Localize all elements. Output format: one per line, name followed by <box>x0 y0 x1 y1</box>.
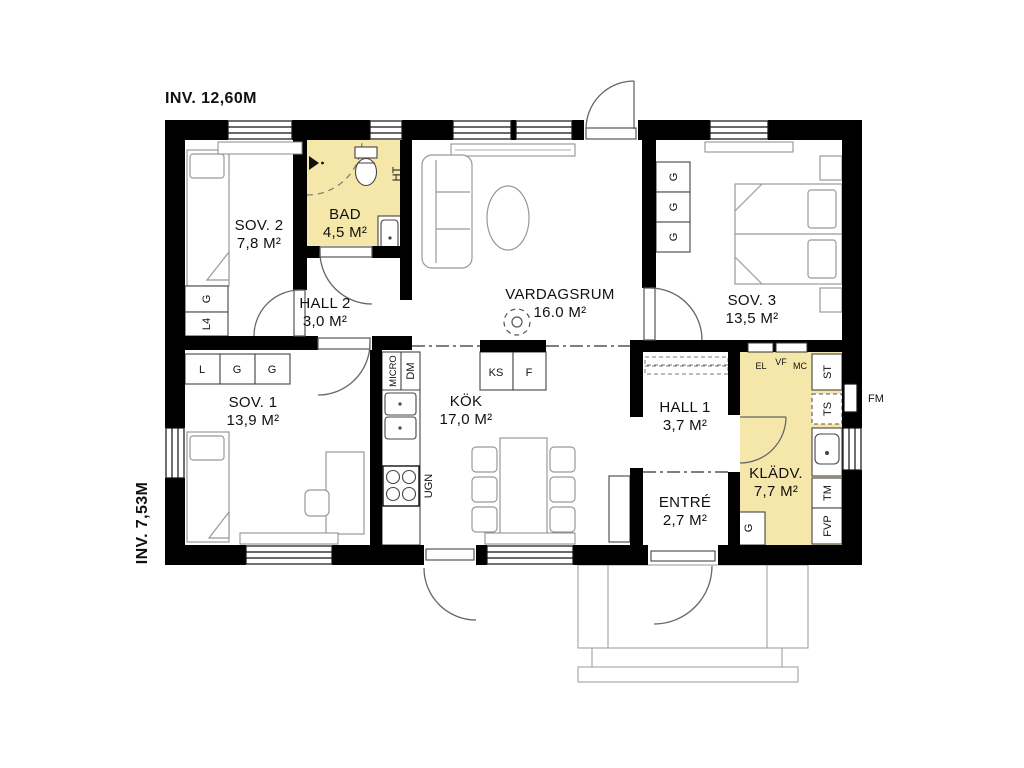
window-sill-kok <box>485 533 575 544</box>
shower-drain-dot <box>321 162 324 165</box>
room-area-entre: 2,7 M² <box>663 512 707 529</box>
room-label-hall1: HALL 1 <box>659 399 710 416</box>
sov3-g3-label: G <box>668 233 680 242</box>
pillow-sov3-2 <box>808 240 836 278</box>
kladv-vf-label: VF <box>775 357 787 367</box>
room-area-kok: 17,0 M² <box>440 411 493 428</box>
wall <box>572 120 584 140</box>
kladv-el-label: EL <box>755 361 766 371</box>
room-label-kok: KÖK <box>450 392 483 410</box>
door-kok-garden <box>424 546 476 620</box>
kladv-ts-label: TS <box>822 402 834 416</box>
room-label-sov3: SOV. 3 <box>728 292 777 309</box>
kok-ks-label: KS <box>489 367 504 379</box>
kok-micro-label: MICRO <box>388 355 399 387</box>
deck-step-1 <box>592 648 782 667</box>
kladv-mc-label: MC <box>793 361 807 371</box>
wall <box>642 140 656 288</box>
kladv-tm-label: TM <box>822 485 834 501</box>
wall <box>165 336 318 350</box>
bad-ht-label: HT <box>391 166 403 181</box>
kok-dm-label: DM <box>405 362 417 379</box>
window-sov1-left <box>166 428 184 478</box>
fm-meter-box <box>844 384 857 412</box>
window-kok-bottom <box>487 546 573 564</box>
wall <box>842 120 862 428</box>
kok-ugn-label: UGN <box>423 474 435 499</box>
sofa <box>422 155 472 268</box>
chair-r2 <box>550 477 575 502</box>
toilet-tank <box>355 147 377 158</box>
window-sill-sov3 <box>705 142 793 152</box>
window-sov3 <box>710 121 768 139</box>
chair-sov1 <box>305 490 329 516</box>
kladv-fvp-label: FVP <box>822 515 834 536</box>
bath-sink-drain <box>388 236 391 239</box>
wall <box>293 258 307 290</box>
chair-l2 <box>472 477 497 502</box>
room-label-vardagsrum: VARDAGSRUM <box>505 286 614 303</box>
window-kladv-right <box>843 428 861 470</box>
room-area-sov1: 13,9 M² <box>227 412 280 429</box>
deck-main <box>578 565 808 648</box>
door-vardagsrum-terrace <box>584 81 638 139</box>
room-label-entre: ENTRÉ <box>659 494 711 511</box>
wall <box>630 352 643 417</box>
room-label-bad: BAD <box>329 206 361 223</box>
nightstand-2 <box>820 288 842 312</box>
sov3-g1-label: G <box>668 173 680 182</box>
sink-drain-2 <box>398 426 401 429</box>
desk-sov1 <box>326 452 364 534</box>
wall <box>728 472 740 545</box>
room-area-hall1: 3,7 M² <box>663 417 707 434</box>
sov1-g1-label: G <box>233 364 242 376</box>
entre-cabinet <box>609 476 630 542</box>
wall <box>842 470 862 565</box>
wall <box>293 246 320 258</box>
room-label-kladv: KLÄDV. <box>749 465 803 482</box>
chair-r1 <box>550 447 575 472</box>
chair-l1 <box>472 447 497 472</box>
window-vardagsrum-2 <box>516 121 572 139</box>
wall <box>630 340 842 352</box>
wall <box>332 545 424 565</box>
pillow-sov3-1 <box>808 190 836 228</box>
nightstand-1 <box>820 156 842 180</box>
room-area-sov3: 13,5 M² <box>726 310 779 327</box>
sov1-g2-label: G <box>268 364 277 376</box>
el-vf-box <box>748 343 773 352</box>
room-area-vardagsrum: 16.0 M² <box>534 304 587 321</box>
wall <box>511 120 516 140</box>
window-sill-sov2 <box>218 142 302 154</box>
deck-step-2 <box>578 667 798 682</box>
room-label-sov2: SOV. 2 <box>235 217 284 234</box>
wall <box>718 545 862 565</box>
coffee-table <box>487 186 529 250</box>
dining-table <box>500 438 547 538</box>
wall <box>293 140 307 258</box>
kladv-g-label: G <box>743 524 755 533</box>
floor-plan-page: INV. 12,60M INV. 7,53M FM SOV. 2 7,8 M² … <box>0 0 1024 768</box>
window-bad <box>370 121 402 139</box>
sov2-g-label: G <box>201 295 213 304</box>
wall <box>476 545 487 565</box>
room-area-sov2: 7,8 M² <box>237 235 281 252</box>
wall <box>400 140 412 258</box>
pillow-sov1 <box>190 436 224 460</box>
kladv-st-label: ST <box>822 365 834 379</box>
fm-label: FM <box>868 393 884 405</box>
room-area-kladv: 7,7 M² <box>754 483 798 500</box>
wall <box>165 478 185 565</box>
wall <box>630 468 643 545</box>
room-label-sov1: SOV. 1 <box>229 394 278 411</box>
wall <box>638 120 710 140</box>
room-area-hall2: 3,0 M² <box>303 313 347 330</box>
entrance-deck <box>578 565 808 682</box>
wall <box>728 352 740 415</box>
sov1-l-label: L <box>199 364 205 376</box>
wall <box>292 120 370 140</box>
floor-plan-svg: INV. 12,60M INV. 7,53M FM SOV. 2 7,8 M² … <box>0 0 1024 768</box>
kok-f-label: F <box>526 367 533 379</box>
wall <box>165 120 185 428</box>
window-sov1-bottom <box>246 546 332 564</box>
inside-width-dimension: INV. 12,60M <box>165 90 257 107</box>
mc-box <box>776 343 807 352</box>
chair-l3 <box>472 507 497 532</box>
sink-drain-1 <box>398 402 401 405</box>
window-vardagsrum-1 <box>453 121 511 139</box>
door-entre-main <box>648 546 718 624</box>
wall <box>370 336 382 545</box>
room-label-hall2: HALL 2 <box>299 295 350 312</box>
chair-r3 <box>550 507 575 532</box>
wall <box>480 340 546 352</box>
wall <box>573 545 648 565</box>
window-sov2 <box>228 121 292 139</box>
window-sill-sov1 <box>240 533 338 544</box>
sov2-l4-label: L4 <box>201 318 213 330</box>
sov2-furniture <box>187 150 229 286</box>
wall <box>402 120 453 140</box>
wall <box>400 258 412 300</box>
sov3-g2-label: G <box>668 203 680 212</box>
kladv-sink-drain <box>825 451 829 455</box>
room-area-bad: 4,5 M² <box>323 224 367 241</box>
inside-depth-dimension: INV. 7,53M <box>134 482 151 565</box>
pillow-sov2 <box>190 154 224 178</box>
